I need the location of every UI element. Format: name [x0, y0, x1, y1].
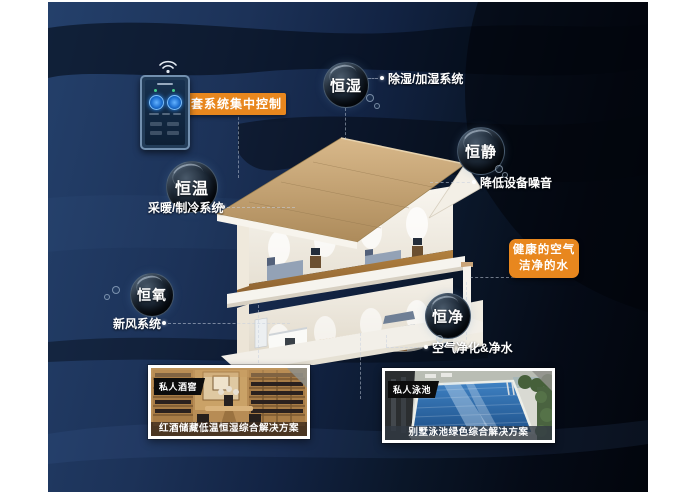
- wine-cellar-tag: 私人酒窖: [154, 378, 205, 395]
- smart-home-infographic: 一套系统集中控制 恒湿 恒静 恒温 恒氧 恒净 除湿/加湿系统 降低设备噪音 采…: [48, 2, 648, 492]
- mini-bubble: [495, 165, 503, 173]
- bullet-hengjing: [472, 180, 476, 184]
- health-air-water-badge: 健康的空气 洁净的水: [509, 239, 579, 278]
- desc-heng-shi: 除湿/加湿系统: [388, 70, 463, 87]
- bubble-heng-wen-label: 恒温: [175, 175, 209, 199]
- card-corner-ribbon: [532, 371, 552, 391]
- connector-hengshi-to-house: [345, 108, 346, 140]
- connector-hengjing2-desc: [386, 347, 422, 348]
- bubble-heng-shi: 恒湿: [323, 62, 369, 108]
- connector-house-to-wine-card: [258, 300, 259, 363]
- badge-line2: 洁净的水: [511, 259, 577, 275]
- desc-heng-jing: 降低设备噪音: [480, 174, 552, 191]
- bullet-hengyang: [162, 321, 166, 325]
- bullet-hengjing2: [424, 345, 428, 349]
- bullet-hengshi: [380, 76, 384, 80]
- mini-bubble: [374, 103, 380, 109]
- mini-bubble: [112, 286, 120, 294]
- central-control-label: 一套系统集中控制: [174, 93, 286, 115]
- desc-heng-jing2: 空气净化&净水: [432, 339, 513, 356]
- card-corner-ribbon: [287, 368, 307, 388]
- mini-bubble: [366, 94, 374, 102]
- smart-control-panel: [140, 75, 190, 150]
- control-panel-screen: [145, 80, 185, 145]
- desc-heng-wen: 采暖/制冷系统: [148, 199, 223, 216]
- wine-cellar-card: 私人酒窖 红酒储藏低温恒湿综合解决方案: [148, 365, 310, 439]
- connector-hengyang-desc: [168, 323, 290, 324]
- connector-control-to-house: [238, 112, 239, 178]
- bubble-heng-jing2-label: 恒净: [432, 306, 464, 327]
- desc-heng-yang: 新风系统: [113, 315, 161, 332]
- connector-hengjing2-up: [386, 335, 387, 347]
- bubble-heng-shi-label: 恒湿: [330, 75, 362, 96]
- connector-house-to-pool-card: [360, 333, 361, 399]
- bubble-heng-jing-label: 恒静: [465, 141, 497, 162]
- wine-cellar-caption: 红酒储藏低温恒湿综合解决方案: [151, 422, 307, 436]
- pool-tag: 私人泳池: [388, 381, 439, 398]
- bubble-heng-yang: 恒氧: [130, 273, 174, 317]
- connector-hengwen-desc: [227, 207, 295, 208]
- mini-bubble: [104, 294, 110, 300]
- pool-card: 私人泳池 别墅泳池绿色综合解决方案: [382, 368, 555, 443]
- bubble-heng-jing2: 恒净: [425, 293, 471, 339]
- bubble-heng-yang-label: 恒氧: [137, 285, 167, 305]
- wifi-icon: [158, 59, 178, 74]
- control-dial-left: [149, 95, 164, 110]
- control-dial-right: [167, 95, 182, 110]
- connector-hengshi-desc: [368, 78, 378, 79]
- pool-caption: 别墅泳池绿色综合解决方案: [385, 426, 552, 440]
- connector-hengjing-desc: [430, 182, 470, 183]
- badge-line1: 健康的空气: [511, 243, 577, 259]
